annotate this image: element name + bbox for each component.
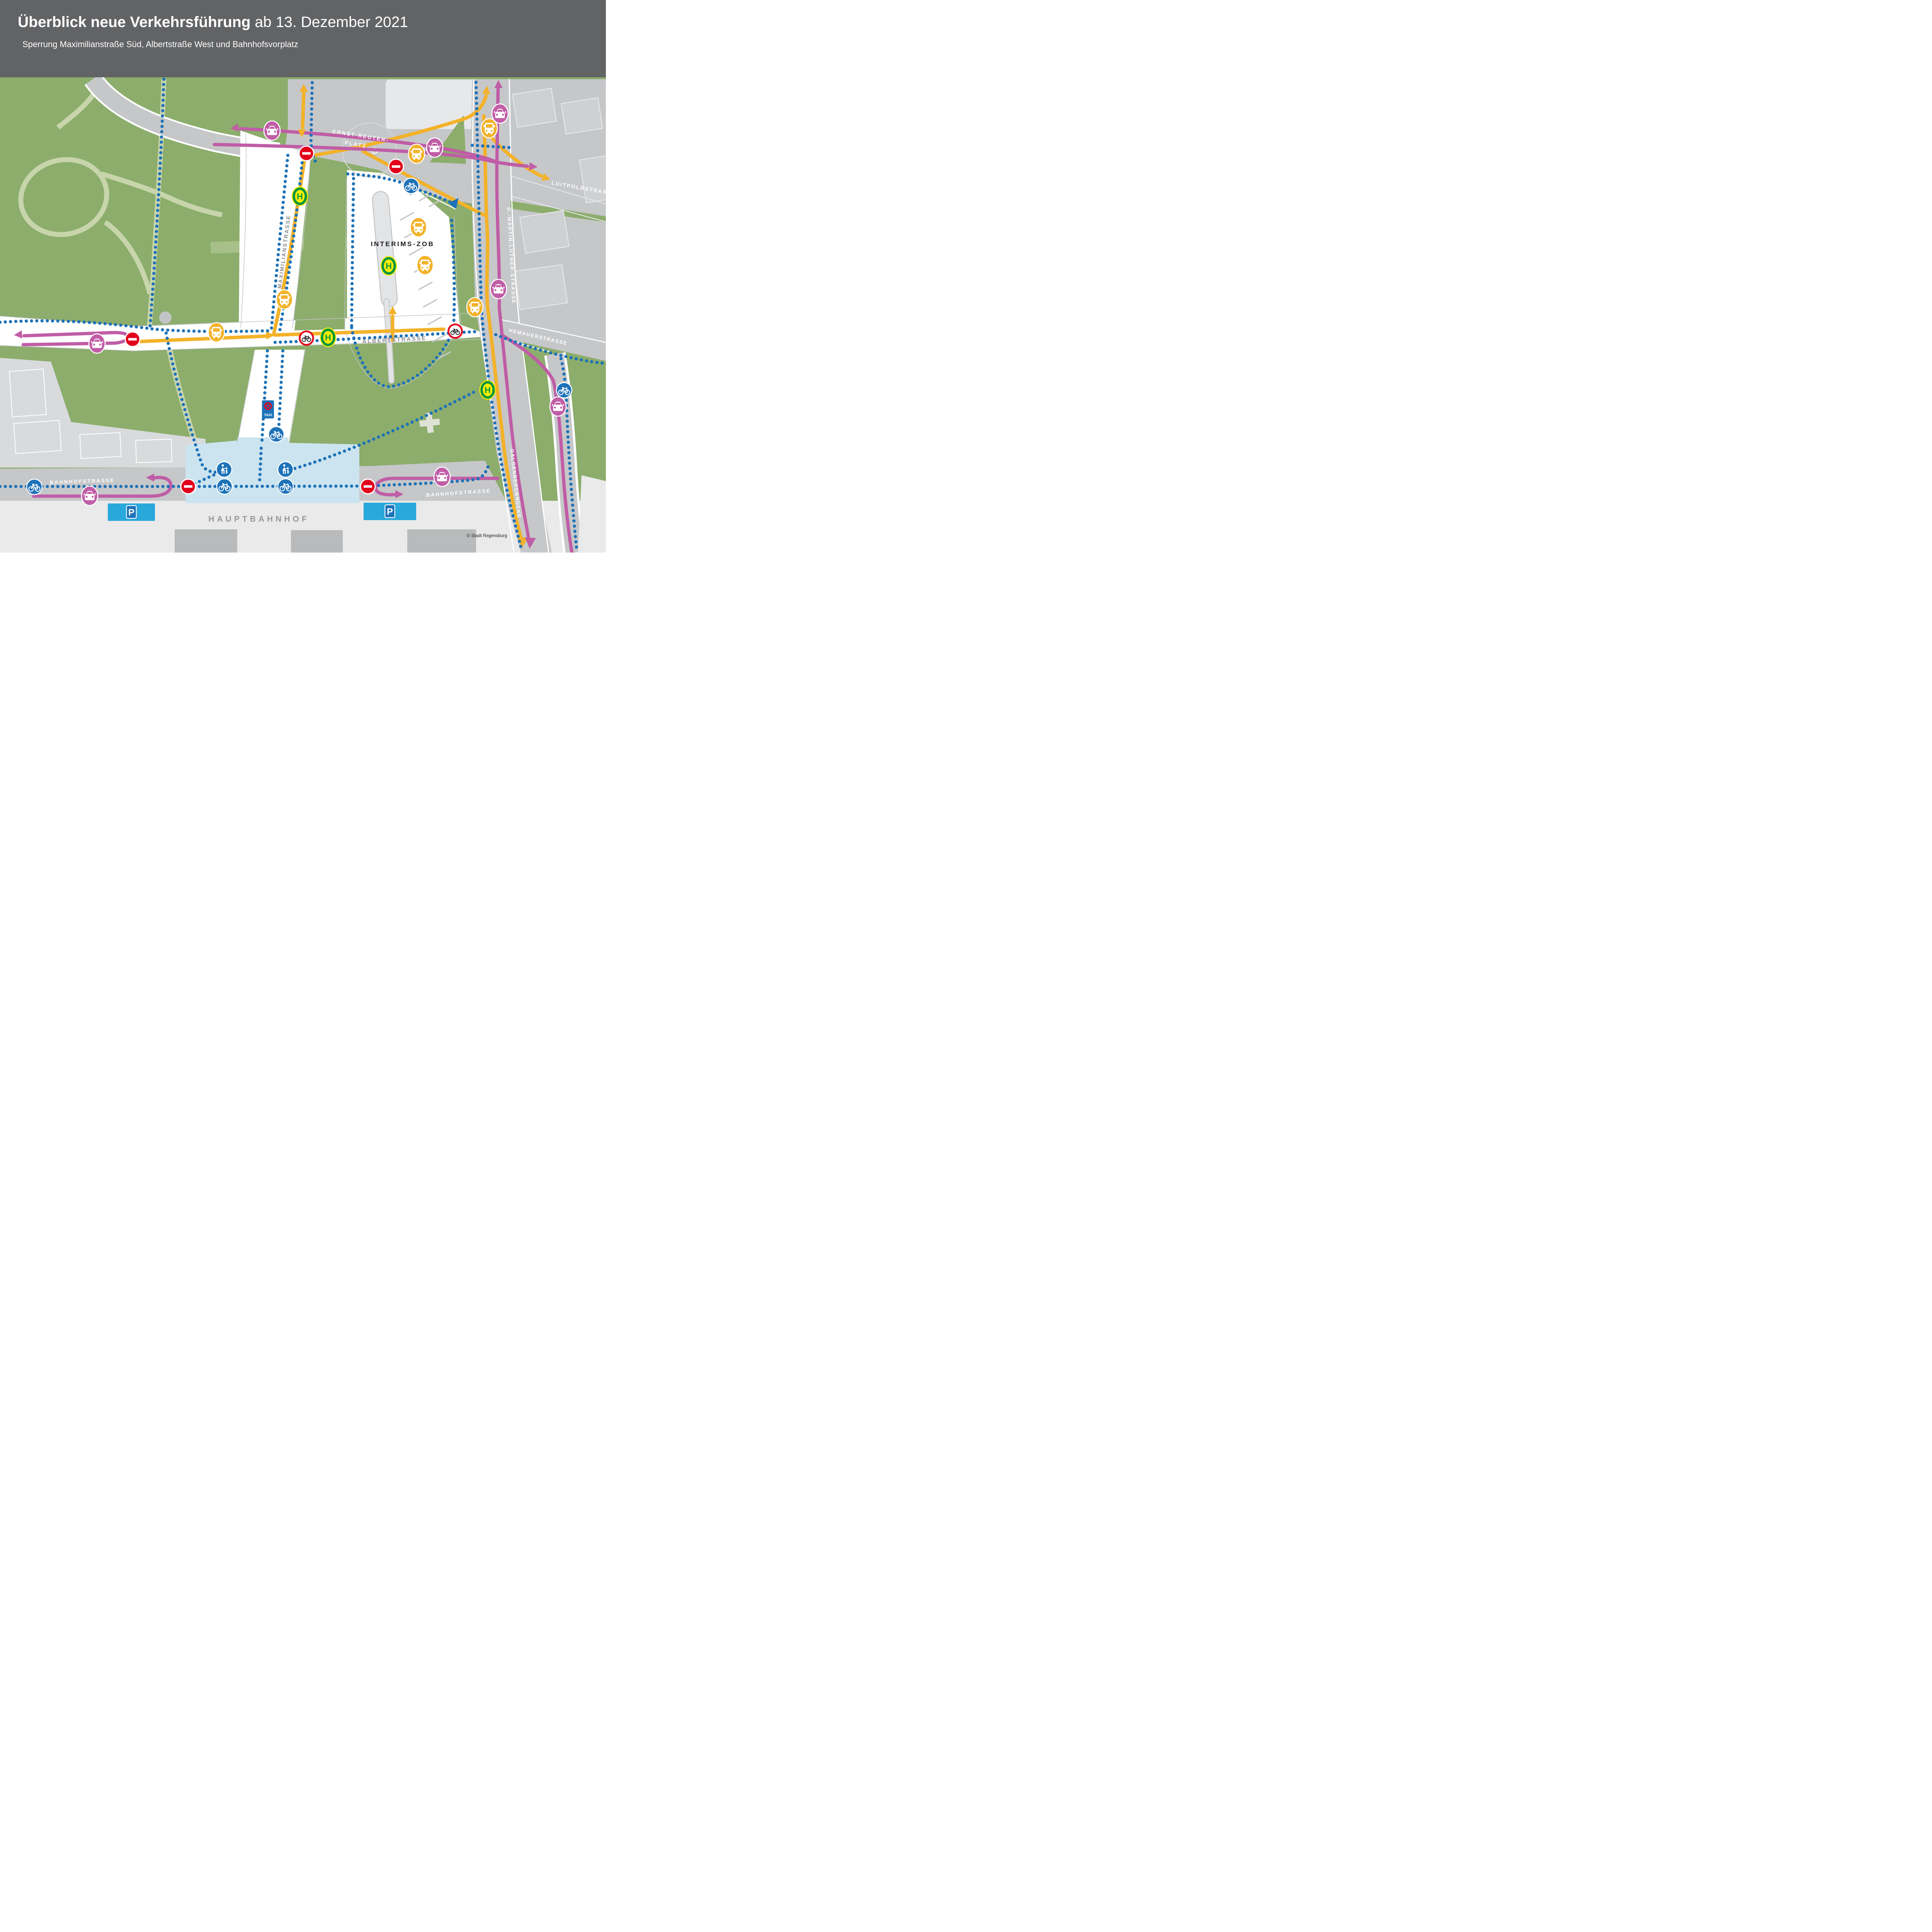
bicycle-icon (217, 479, 232, 494)
bicycle-icon (278, 479, 293, 494)
bus-icon (276, 290, 293, 309)
building (520, 211, 569, 253)
bus-icon (467, 298, 483, 317)
green-east (578, 359, 606, 479)
car-icon (492, 104, 508, 123)
bus-stop-letter: H (325, 333, 331, 342)
car-icon (89, 334, 105, 353)
no-entry-icon (361, 479, 375, 494)
bicycle-icon (403, 178, 419, 194)
building (512, 88, 556, 128)
station-label: HAUPTBAHNHOF (208, 515, 309, 524)
title-date: ab 13. Dezember 2021 (251, 14, 408, 31)
small-building (159, 311, 172, 324)
bicycle-icon (556, 383, 572, 398)
taxi-stand-sign: TAXI (262, 400, 274, 418)
bahnhofsvorplatz-plaza (185, 437, 359, 503)
bus-stop-letter: H (386, 261, 392, 271)
bus-stop-letter: H (297, 192, 303, 201)
car-icon (427, 138, 443, 157)
infographic: Überblick neue Verkehrsführung ab 13. De… (0, 0, 606, 553)
station-building (291, 530, 343, 553)
bus-icon (417, 255, 433, 275)
station-building (175, 529, 237, 553)
car-icon (264, 121, 280, 140)
building (561, 98, 602, 134)
no-entry-icon (389, 159, 403, 174)
pedestrian-icon (216, 462, 232, 477)
no-entry-icon (181, 479, 196, 494)
bus-icon (208, 323, 224, 342)
bus-icon (408, 144, 425, 163)
station-building (407, 529, 476, 553)
page-title: Überblick neue Verkehrsführung ab 13. De… (18, 14, 408, 31)
title-bold: Überblick neue Verkehrsführung (18, 14, 251, 31)
building-area-southeast (578, 475, 606, 553)
bicycle-icon (269, 427, 284, 442)
car-icon (490, 279, 507, 299)
parking-letter: P (387, 507, 393, 517)
zob-label: INTERIMS-ZOB (371, 240, 435, 248)
no-bicycle-icon (300, 332, 313, 345)
building (386, 80, 478, 129)
copyright: © Stadt Regensburg (467, 534, 507, 538)
bicycle-icon (27, 479, 42, 495)
header: Überblick neue Verkehrsführung ab 13. De… (0, 0, 606, 77)
bus-route-line (303, 94, 304, 128)
building (515, 265, 568, 310)
no-entry-icon (299, 146, 314, 161)
no-bicycle-icon (449, 325, 462, 338)
taxi-label: TAXI (264, 413, 272, 417)
car-icon (550, 397, 566, 416)
bus-icon (410, 218, 427, 237)
bus-stop-letter: H (485, 385, 491, 395)
car-icon (434, 467, 450, 486)
pedestrian-icon (278, 462, 293, 477)
car-icon (82, 486, 98, 505)
page-subtitle: Sperrung Maximilianstraße Süd, Albertstr… (22, 39, 298, 49)
map-canvas: H H H H P P TAXI ERNST-REUTER- (0, 77, 606, 553)
no-entry-icon (125, 332, 140, 347)
parking-letter: P (128, 507, 134, 518)
